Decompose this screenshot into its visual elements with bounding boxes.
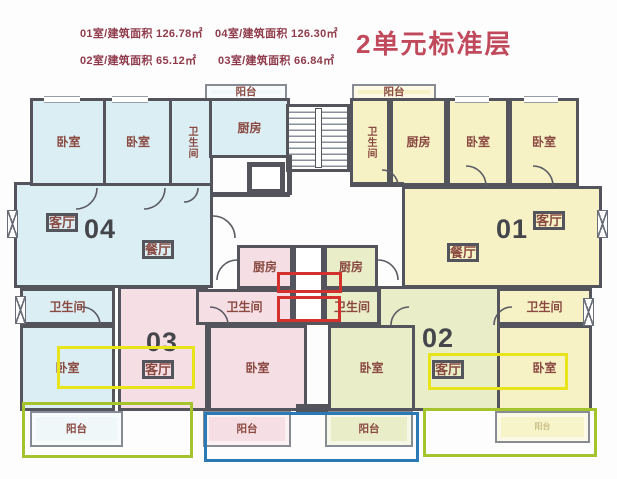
room-label: 卧室 [532, 136, 556, 148]
room-label: 卧室 [359, 362, 383, 374]
unit01-bathroom-top: 卫生间 [350, 98, 390, 186]
unit04-bedroom-1: 卧室 [30, 98, 107, 186]
annotation-box-yellow [57, 346, 195, 389]
unit-number-02: 02 [422, 325, 454, 352]
room-label: 厨房 [253, 261, 277, 273]
window-icon [583, 298, 594, 326]
unit01-bathroom-bottom: 卫生间 [497, 288, 592, 325]
unit04-bathroom-top: 卫生间 [169, 98, 213, 186]
window-icon [15, 296, 26, 324]
unit03-bedroom: 卧室 [208, 325, 307, 411]
room-label: 厨房 [339, 261, 363, 273]
unit-number-01: 01 [496, 216, 528, 243]
annotation-box-blue [204, 412, 419, 462]
stair-rail [315, 108, 322, 168]
room-label: 卧室 [245, 362, 269, 374]
annotation-box-green [22, 402, 193, 458]
annotation-box-red [277, 272, 342, 293]
window-icon [597, 210, 608, 238]
unit04-kitchen: 厨房 [209, 98, 290, 158]
annotation-box-yellow [428, 353, 568, 390]
room-label: 卧室 [466, 136, 490, 148]
unit-number-04: 04 [84, 216, 116, 243]
window-opening [44, 96, 80, 103]
room-label: 厨房 [406, 136, 430, 148]
elevator-shaft [247, 162, 285, 194]
window-icon [7, 210, 18, 238]
room-label: 厨房 [237, 122, 261, 134]
floor-plan: 卧室卧室卫生间厨房卫生间卧室阳台阳台阳台卫生间厨房卧室卧室卫生间卧室阳台厨房卫生… [0, 0, 617, 479]
room-label: 卫生间 [226, 301, 262, 313]
door-arc [217, 260, 237, 280]
plan-label: 客厅 [533, 211, 565, 230]
annotation-box-green [423, 408, 597, 457]
plan-label: 餐厅 [447, 243, 479, 262]
window-opening [455, 96, 489, 103]
unit04-bathroom-bottom: 卫生间 [20, 288, 115, 325]
door-arc [213, 216, 235, 238]
room-label: 卧室 [126, 136, 150, 148]
door-arc [378, 260, 398, 280]
room-label: 卫生间 [365, 126, 375, 159]
room-label: 卫生间 [49, 301, 85, 313]
window-opening [524, 96, 558, 103]
unit01-kitchen: 厨房 [390, 98, 447, 186]
room-label: 阳台 [384, 87, 405, 98]
room-label: 卫生间 [526, 301, 562, 313]
plan-label: 餐厅 [142, 240, 174, 259]
wall-segment [287, 155, 292, 195]
window-opening [112, 96, 148, 103]
room-label: 阳台 [236, 87, 257, 98]
wall-segment [350, 182, 404, 187]
unit04-bedroom-2: 卧室 [103, 98, 173, 186]
room-label: 卧室 [56, 136, 80, 148]
plan-label: 客厅 [46, 213, 78, 232]
unit02-bedroom: 卧室 [328, 325, 415, 411]
room-label: 卫生间 [186, 126, 196, 159]
floorplan-image: 01室/建筑面积 126.78㎡ 04室/建筑面积 126.30㎡ 02室/建筑… [0, 0, 617, 479]
unit01-bedroom-1: 卧室 [447, 98, 509, 186]
unit01-bedroom-2: 卧室 [509, 98, 579, 186]
annotation-box-red [277, 296, 341, 322]
